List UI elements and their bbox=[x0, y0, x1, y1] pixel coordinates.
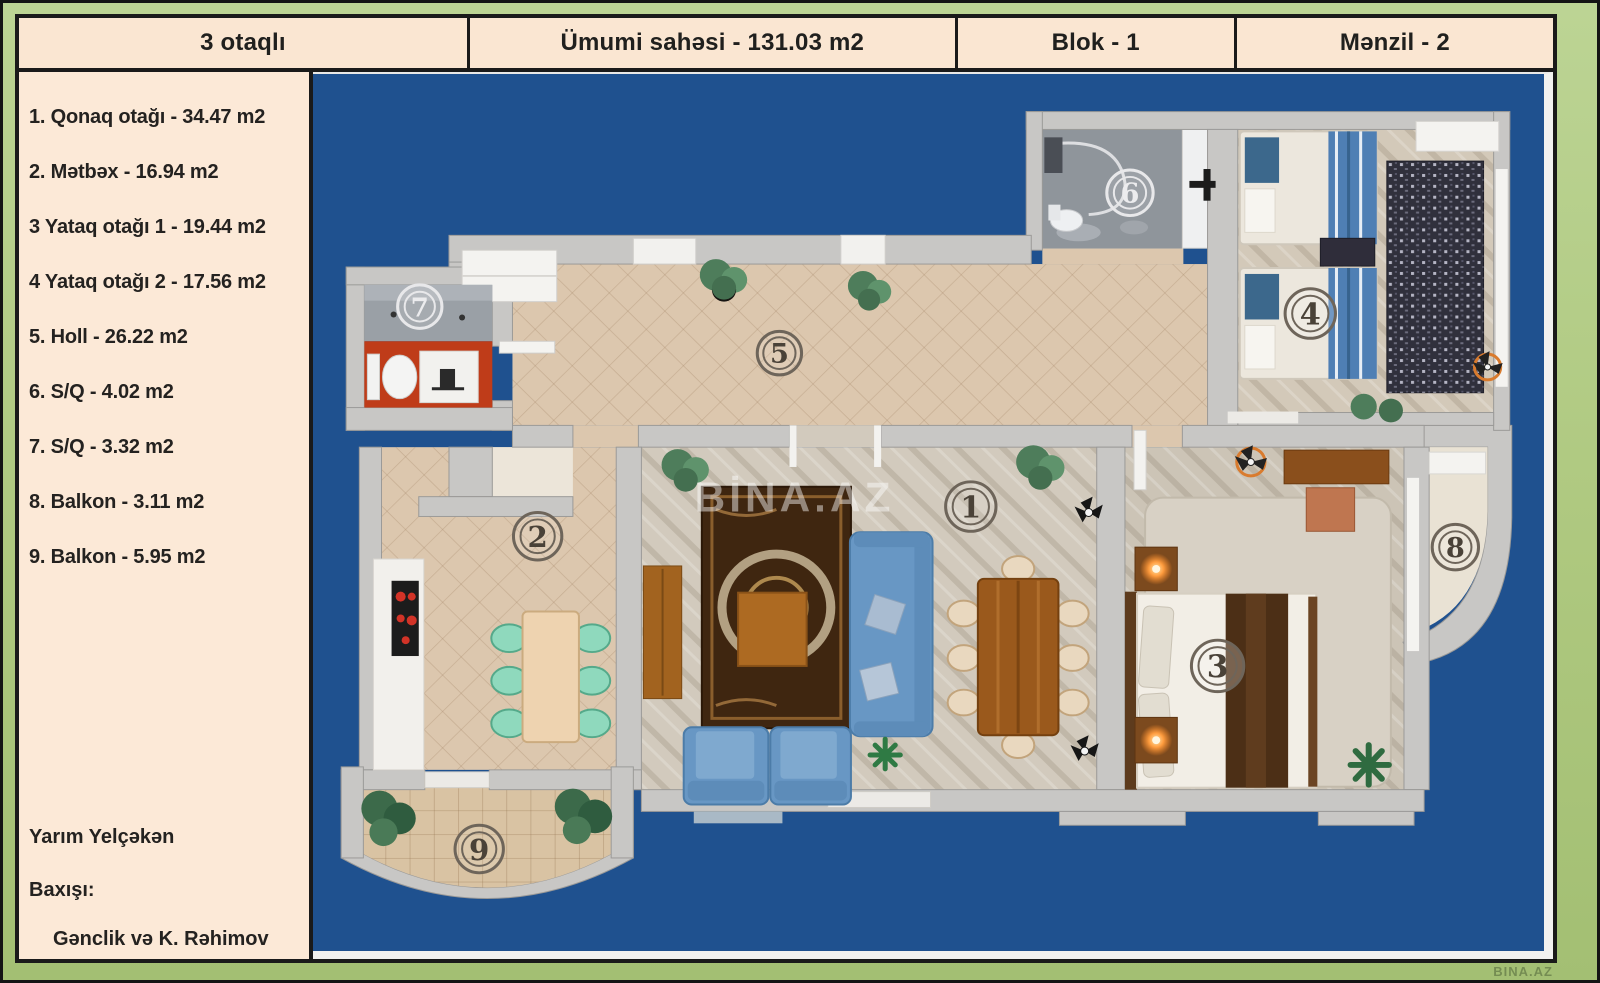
legend-item-5: 5. Holl - 26.22 m2 bbox=[29, 310, 305, 365]
room3-window bbox=[1407, 478, 1419, 651]
room-badge-8: 8 bbox=[1432, 524, 1478, 570]
room-badge-2: 2 bbox=[513, 513, 561, 561]
note-yarim-yelcekan: Yarım Yelçəkən bbox=[29, 826, 305, 849]
floorplan-svg: 1 2 3 bbox=[313, 74, 1544, 951]
twin-bed-1 bbox=[1240, 131, 1377, 244]
legend-item-7: 7. S/Q - 3.32 m2 bbox=[29, 420, 305, 475]
room3-desk bbox=[1284, 450, 1389, 484]
room3-plant bbox=[1351, 745, 1389, 785]
svg-text:6: 6 bbox=[1121, 179, 1140, 210]
svg-text:1: 1 bbox=[960, 491, 981, 526]
room-badge-7: 7 bbox=[398, 285, 442, 329]
svg-text:5: 5 bbox=[770, 339, 789, 370]
body: 1. Qonaq otağı - 34.47 m2 2. Mətbəx - 16… bbox=[19, 72, 1553, 959]
content-frame: 3 otaqlı Ümumi sahəsi - 131.03 m2 Blok -… bbox=[15, 14, 1557, 963]
header-total-area: Ümumi sahəsi - 131.03 m2 bbox=[470, 18, 958, 68]
sofa bbox=[850, 532, 933, 736]
side-plant bbox=[870, 739, 900, 769]
armchair-1 bbox=[684, 727, 769, 804]
legend-item-9: 9. Balkon - 5.95 m2 bbox=[29, 530, 305, 585]
svg-text:7: 7 bbox=[411, 294, 429, 324]
note-view-target: Gənclik və K. Rəhimov bbox=[29, 928, 305, 951]
note-baxisi: Baxışı: bbox=[29, 879, 305, 902]
room-badge-4: 4 bbox=[1285, 289, 1335, 338]
armchair-2 bbox=[770, 727, 851, 804]
legend-item-3: 3 Yataq otağı 1 - 19.44 m2 bbox=[29, 200, 305, 255]
living-balcony-sill bbox=[694, 811, 783, 823]
legend-item-2: 2. Mətbəx - 16.94 m2 bbox=[29, 145, 305, 200]
coffee-table bbox=[738, 593, 807, 666]
svg-text:4: 4 bbox=[1300, 298, 1321, 333]
header-block: Blok - 1 bbox=[958, 18, 1237, 68]
legend-notes: Yarım Yelçəkən Baxışı: Gənclik və K. Rəh… bbox=[29, 826, 305, 951]
header: 3 otaqlı Ümumi sahəsi - 131.03 m2 Blok -… bbox=[19, 18, 1553, 72]
legend-item-4: 4 Yataq otağı 2 - 17.56 m2 bbox=[29, 255, 305, 310]
svg-text:2: 2 bbox=[527, 520, 547, 554]
kitchen-counter bbox=[373, 559, 423, 770]
room3-ottoman bbox=[1306, 488, 1354, 532]
room-legend: 1. Qonaq otağı - 34.47 m2 2. Mətbəx - 16… bbox=[19, 72, 313, 959]
header-apartment: Mənzil - 2 bbox=[1237, 18, 1553, 68]
svg-text:9: 9 bbox=[469, 833, 489, 867]
corner-watermark: BINA.AZ bbox=[1493, 964, 1553, 979]
room-badge-9: 9 bbox=[455, 825, 503, 873]
watermark: BİNA.AZ bbox=[695, 474, 895, 521]
room-badge-1: 1 bbox=[946, 482, 996, 531]
legend-item-1: 1. Qonaq otağı - 34.47 m2 bbox=[29, 90, 305, 145]
room4-nightstand bbox=[1320, 238, 1374, 266]
floorplan-canvas: 1 2 3 bbox=[313, 72, 1553, 959]
tv-stand bbox=[643, 566, 681, 699]
svg-text:8: 8 bbox=[1446, 533, 1465, 564]
kitchen-dining-set bbox=[491, 611, 610, 742]
legend-item-8: 8. Balkon - 3.11 m2 bbox=[29, 475, 305, 530]
room4-wardrobe-rug bbox=[1387, 161, 1484, 393]
nightstand-2 bbox=[1135, 717, 1177, 763]
room4-window bbox=[1496, 169, 1508, 387]
floorplan-poster: 3 otaqlı Ümumi sahəsi - 131.03 m2 Blok -… bbox=[0, 0, 1600, 983]
header-room-count: 3 otaqlı bbox=[19, 18, 470, 68]
legend-item-6: 6. S/Q - 4.02 m2 bbox=[29, 365, 305, 420]
svg-text:3: 3 bbox=[1207, 649, 1229, 685]
room-badge-6: 6 bbox=[1107, 170, 1153, 216]
room-badge-5: 5 bbox=[757, 331, 801, 375]
nightstand-1 bbox=[1135, 547, 1177, 591]
room-badge-3: 3 bbox=[1191, 640, 1243, 691]
